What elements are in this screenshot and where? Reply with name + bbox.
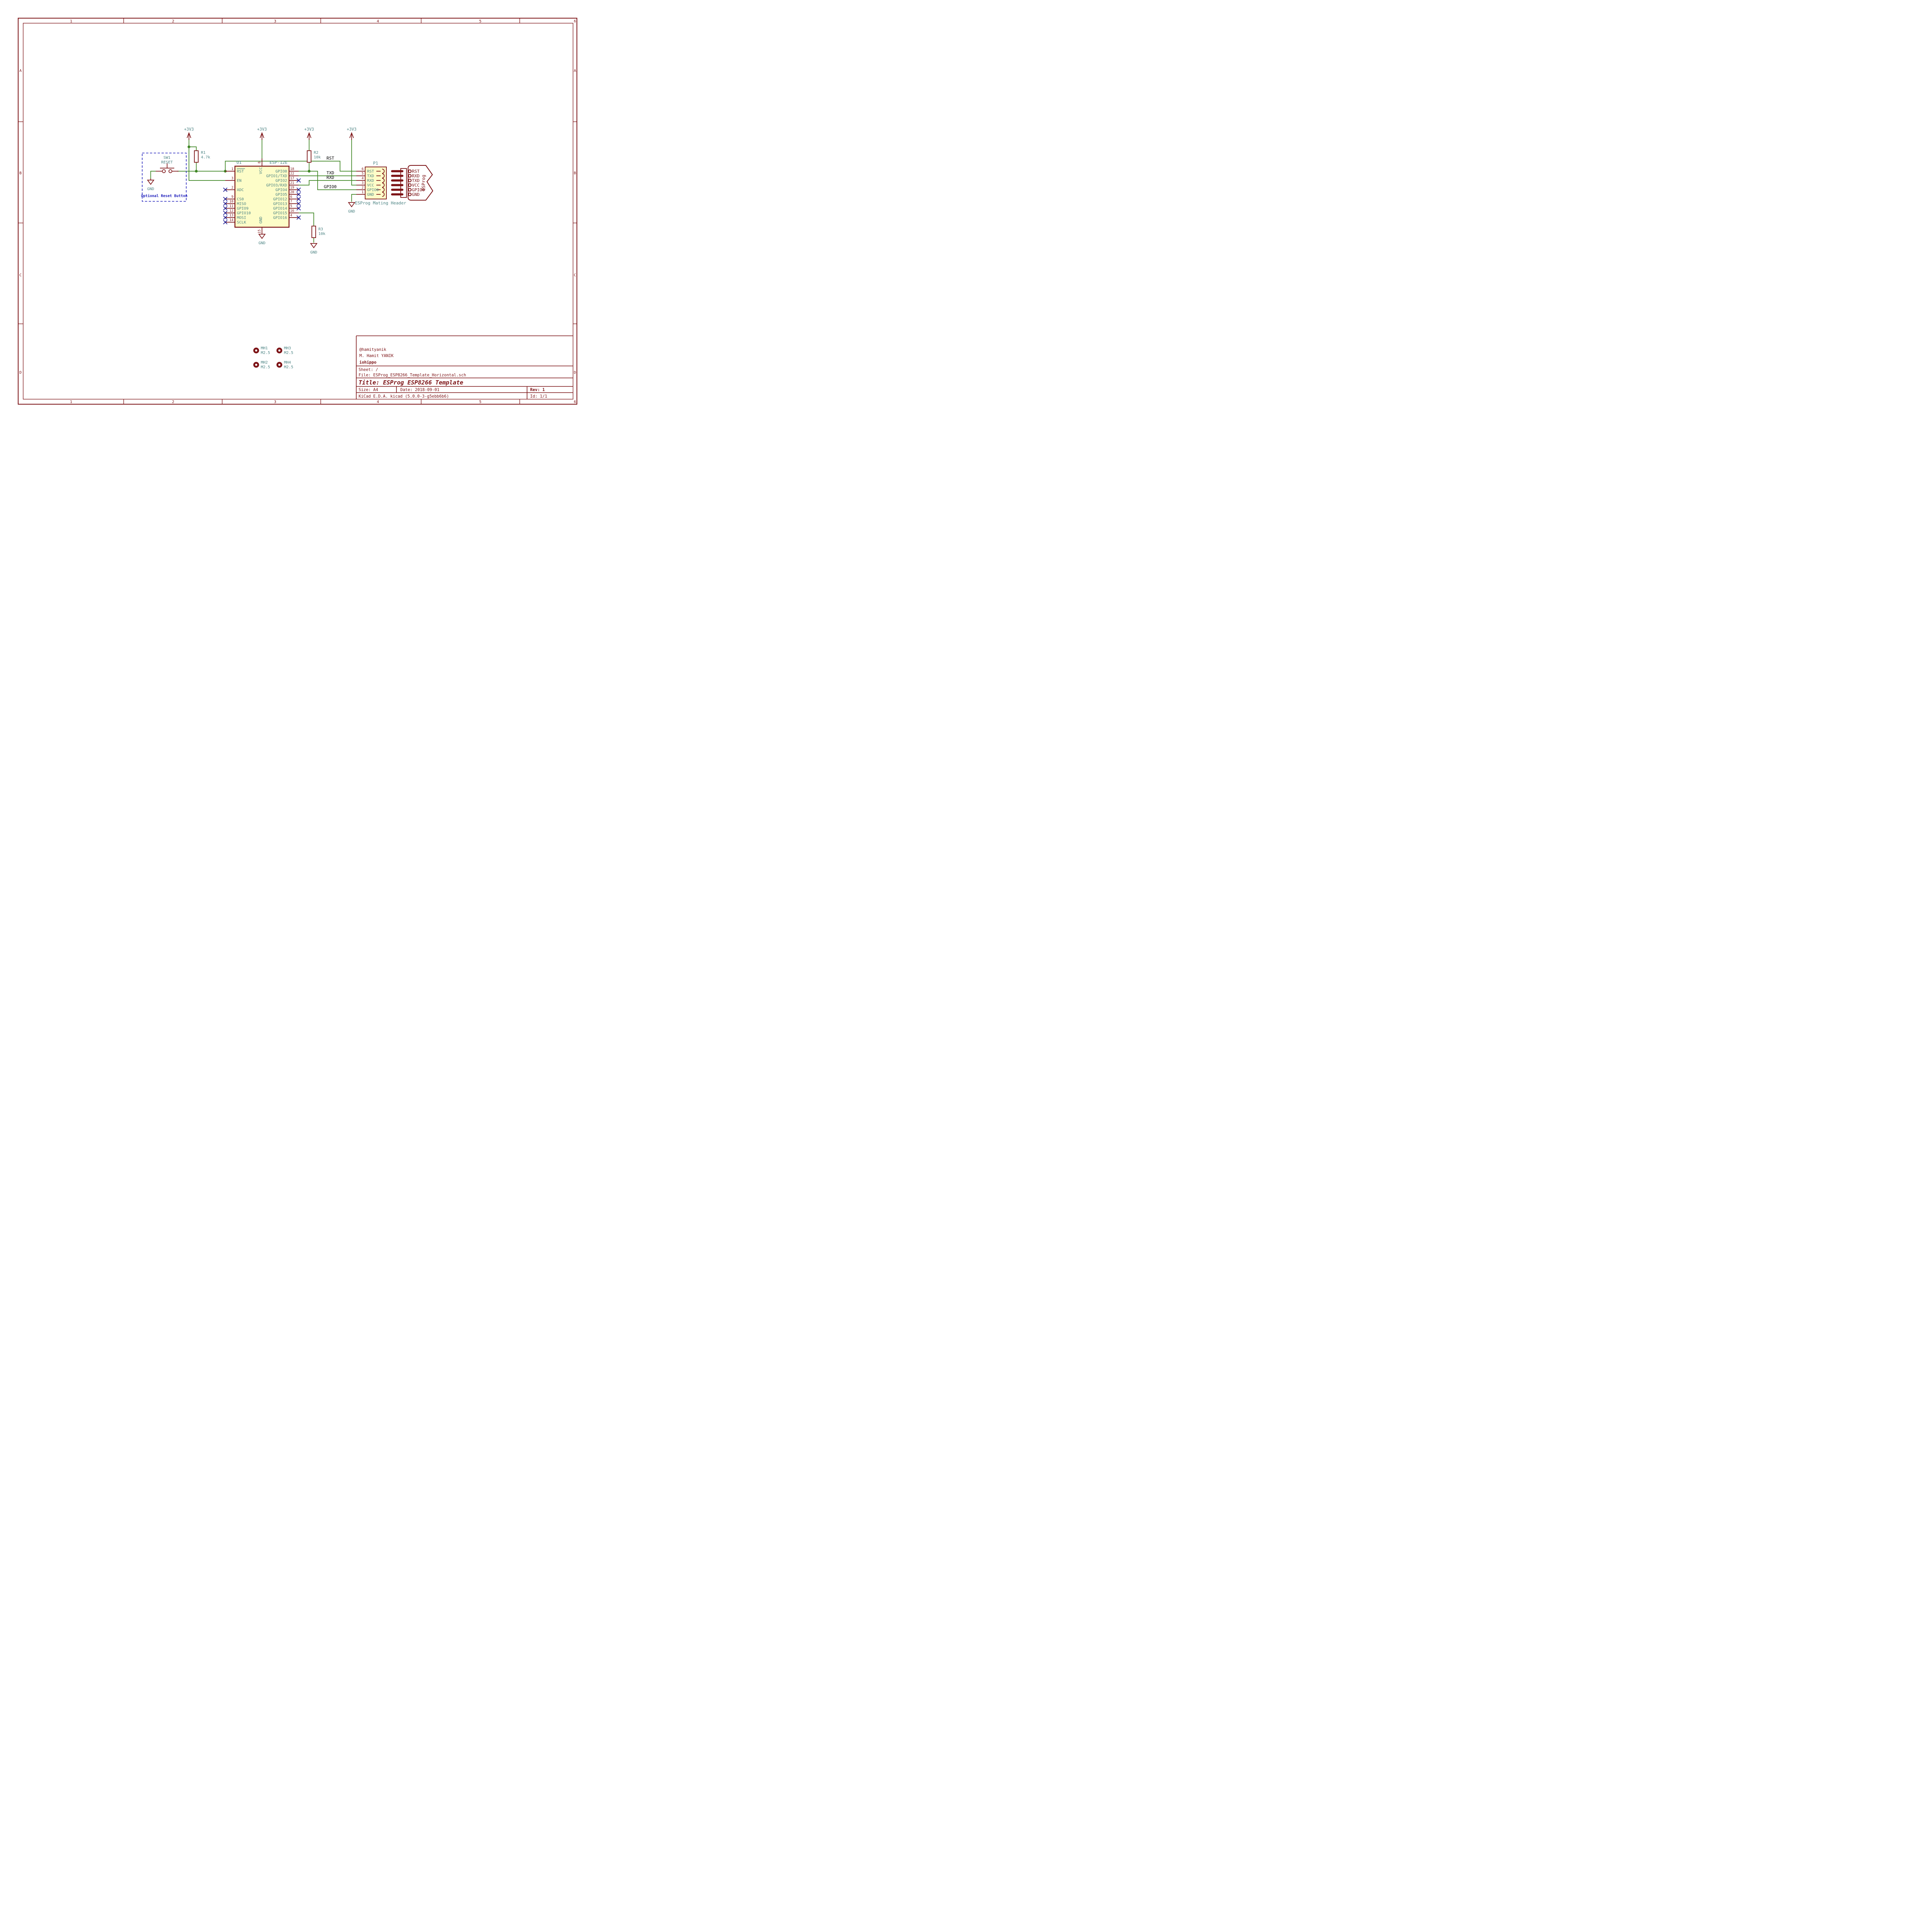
grid-row-label: A	[574, 69, 576, 73]
u1-pin-name: GPIO9	[237, 207, 248, 211]
grid-row-label: B	[574, 171, 576, 175]
junction-3v3-split	[187, 145, 190, 148]
r1-value: 4.7k	[201, 155, 210, 160]
grid-row-label: D	[19, 371, 22, 375]
u1-pin-name: ADC	[237, 188, 244, 192]
u1-pin-num: 10	[230, 200, 233, 204]
wire-gpio15-r3	[299, 213, 314, 226]
note-text: Optional Reset Button	[141, 194, 187, 198]
r3-component[interactable]: R3 10k	[312, 226, 325, 238]
tb-comment-handle: @hamityanik	[359, 347, 386, 352]
u1-pin-num: 22	[290, 172, 294, 176]
tb-date: Date: 2018-09-01	[400, 388, 439, 392]
wire-sw1-gnd	[151, 171, 156, 179]
u1-pin-name: CS0	[237, 197, 244, 202]
p1-pin-name: RXD	[367, 179, 374, 183]
esprog-pin-bar	[391, 170, 403, 172]
u1-pin-name: GPIO15	[273, 211, 287, 216]
r1-component[interactable]: R1 4.7k	[194, 151, 210, 162]
grid-col-label: 3	[274, 400, 276, 404]
grid-col-label: 5	[479, 400, 481, 404]
u1-pin-num: 6	[290, 195, 292, 199]
u1-pin-name: MISO	[237, 202, 246, 206]
junction-r1-rst	[195, 170, 197, 172]
gnd-label: GND	[147, 187, 154, 191]
u1-pin-num: 15	[258, 230, 262, 233]
esprog-connector[interactable]: RST RXD TXD VCC GPIO0 GND ESProg	[391, 165, 433, 200]
mh-ref: MH1	[261, 346, 268, 350]
tb-sheet: Sheet: /	[359, 367, 378, 372]
power-3v3-1	[187, 133, 191, 140]
mh4-component: MH4 M2.5	[277, 361, 294, 369]
u1-pin-name: GPIO1/TXD	[266, 174, 287, 179]
esprog-pin-bar	[391, 179, 403, 182]
p1-component[interactable]: P1 6 5 4 3 2 1 RST TXD RXD VCC GPIO0 GND	[355, 161, 406, 206]
esprog-pin-bar	[391, 193, 403, 196]
grid-col-label: 6	[574, 19, 576, 24]
u1-pin-num: 1	[231, 167, 233, 171]
grid-col-label: 4	[377, 19, 379, 24]
p1-pin-num: 2	[362, 186, 364, 190]
tb-size: Size: A4	[359, 388, 378, 392]
u1-pin-num: 9	[231, 195, 233, 199]
grid-row-label: D	[574, 371, 576, 375]
net-label-rst: RST	[327, 156, 334, 161]
grid-col-label: 6	[574, 400, 576, 404]
mh-value: M2.5	[284, 365, 293, 369]
power-3v3-4	[350, 133, 354, 140]
u1-pin-num: 7	[290, 200, 292, 204]
u1-pin-name: GND	[259, 216, 263, 223]
grid-row-label: A	[19, 69, 22, 73]
schematic-canvas[interactable]: 1 2 3 4 5 6 1 2 3 4 5 6 A B C D A B C D	[0, 0, 597, 422]
gnd-r3	[311, 243, 317, 248]
u1-pin-num: 5	[290, 204, 292, 208]
power-3v3-symbols[interactable]	[187, 133, 354, 140]
u1-pin-name: GPIO5	[276, 193, 287, 197]
u1-pin-name: GPIO3/RXD	[266, 184, 287, 188]
p1-pin-num: 5	[362, 172, 364, 176]
u1-pin-num: 2	[231, 186, 233, 190]
u1-pin-num: 4	[290, 214, 292, 218]
esprog-pin-bar	[391, 189, 403, 191]
power-label: +3V3	[257, 127, 267, 132]
grid-row-label: C	[19, 273, 22, 277]
mh2-component: MH2 M2.5	[253, 361, 270, 369]
tb-file: File: ESProg_ESP8266_Template_Horizontal…	[359, 373, 466, 378]
mh-ref: MH3	[284, 346, 291, 350]
u1-pin-name: EN	[237, 179, 241, 183]
esprog-housing	[401, 168, 406, 197]
esprog-pin-bar	[391, 184, 403, 186]
power-3v3-3	[307, 133, 311, 140]
p1-pin-num: 1	[362, 191, 364, 194]
esprog-pin-label: GND	[412, 192, 420, 197]
power-label: +3V3	[184, 127, 194, 132]
p1-ref: P1	[373, 161, 378, 166]
u1-pin-name: GPIO4	[276, 188, 287, 192]
power-label: +3V3	[304, 127, 314, 132]
mh-value: M2.5	[261, 365, 270, 369]
u1-pin-num: 19	[290, 186, 294, 190]
mh-value: M2.5	[261, 351, 270, 355]
u1-pin-name: GPIO10	[237, 211, 251, 216]
gnd-p1	[349, 202, 355, 207]
p1-pin-name: VCC	[367, 184, 374, 188]
esprog-label: ESProg	[421, 175, 426, 191]
tb-id: Id: 1/1	[530, 394, 547, 399]
u1-pin-num: 17	[290, 177, 294, 180]
r3-ref: R3	[318, 227, 323, 231]
p1-pin-num: 4	[362, 177, 364, 180]
sheet-border	[18, 18, 577, 404]
tb-title: Title: ESProg ESP8266 Template	[359, 379, 463, 386]
u1-pin-name: GPIO12	[273, 197, 287, 202]
net-label-rxd: RXD	[327, 175, 334, 180]
sw1-value: RESET	[161, 160, 173, 165]
u1-pin-num: 21	[290, 181, 294, 185]
mh1-component: MH1 M2.5	[253, 346, 270, 355]
grid-row-label: C	[574, 273, 576, 277]
sw1-component[interactable]: SW1 RESET	[156, 156, 179, 173]
u1-pin-name: MOSI	[237, 216, 246, 220]
power-label: +3V3	[347, 127, 356, 132]
tb-comment-name: M. Hamit YANIK	[359, 354, 394, 358]
u1-pin-name: GPIO2	[276, 179, 287, 183]
p1-pin-num: 3	[362, 181, 364, 185]
net-labels[interactable]: RST TXD RXD GPIO0	[324, 156, 337, 189]
grid-col-label: 2	[172, 400, 174, 404]
u1-ref: U1	[236, 160, 241, 165]
u1-pin-num: 12	[230, 209, 233, 213]
u1-pin-name: GPIO14	[273, 207, 287, 211]
p1-pin-name: GPIO0	[367, 188, 379, 192]
sw1-ref: SW1	[163, 156, 170, 160]
title-block: @hamityanik M. Hamit YANIK iohippo Sheet…	[356, 336, 573, 399]
u1-pin-name: VCC	[259, 167, 263, 174]
sheet-grid-labels: 1 2 3 4 5 6 1 2 3 4 5 6 A B C D A B C D	[19, 19, 576, 404]
u1-pin-num: 20	[290, 191, 294, 194]
r2-component[interactable]: R2 10k	[307, 151, 321, 162]
grid-col-label: 4	[377, 400, 379, 404]
u1-pin-num: 16	[290, 209, 294, 213]
mh-ref: MH4	[284, 361, 291, 365]
gnd-sw1	[148, 179, 154, 184]
r2-ref: R2	[314, 151, 318, 155]
gnd-label: GND	[259, 241, 265, 245]
mh-ref: MH2	[261, 361, 268, 365]
tb-tool: KiCad E.D.A. kicad (5.0.0-3-g5ebb6b6)	[359, 394, 449, 399]
junction-r2-gpio0	[308, 170, 310, 172]
net-label-gpio0: GPIO0	[324, 184, 337, 189]
u1-pin-num: 18	[290, 167, 294, 171]
u1-pin-num: 3	[231, 177, 233, 180]
grid-col-label: 3	[274, 19, 276, 24]
gnd-label: GND	[310, 250, 317, 255]
grid-col-label: 2	[172, 19, 174, 24]
grid-col-label: 5	[479, 19, 481, 24]
u1-pin-num: 13	[230, 214, 233, 218]
u1-pin-num: 14	[230, 218, 233, 222]
u1-pin-name: GPIO16	[273, 216, 287, 220]
u1-pin-name: SCLK	[237, 221, 246, 225]
grid-row-label: B	[19, 171, 22, 175]
r1-ref: R1	[201, 151, 206, 155]
u1-pin-name: RST	[237, 170, 244, 174]
power-3v3-labels: +3V3 +3V3 +3V3 +3V3	[184, 127, 356, 132]
grid-col-label: 1	[70, 400, 72, 404]
grid-col-label: 1	[70, 19, 72, 24]
tb-comment-org: iohippo	[359, 360, 376, 365]
p1-note: ESProg Mating Header	[355, 201, 406, 206]
esprog-pin-bar	[391, 175, 403, 177]
u1-pin-name: GPIO0	[276, 170, 287, 174]
p1-pin-name: RST	[367, 170, 374, 174]
mh3-component: MH3 M2.5	[277, 346, 294, 355]
p1-pin-num: 6	[362, 167, 364, 171]
u1-component[interactable]: U1 ESP-12E 8 VCC 15 GND 1 3 2 9 10 11 12…	[225, 158, 299, 233]
p1-pin-name: GND	[367, 193, 374, 197]
p1-pin-name: TXD	[367, 174, 374, 179]
mh-value: M2.5	[284, 351, 293, 355]
schematic-page: 1 2 3 4 5 6 1 2 3 4 5 6 A B C D A B C D	[0, 0, 597, 422]
wire-3v3-p1vcc	[352, 139, 356, 185]
u1-value: ESP-12E	[270, 160, 287, 165]
r3-value: 10k	[318, 232, 325, 236]
u1-pin-num: 11	[230, 204, 233, 208]
mounting-holes[interactable]: MH1 M2.5 MH2 M2.5 MH3 M2.5 MH4 M2.5	[253, 346, 294, 369]
power-3v3-2	[260, 133, 264, 140]
u1-pin-num: 8	[258, 162, 262, 163]
r2-value: 10k	[314, 155, 321, 160]
gnd-label: GND	[348, 209, 355, 214]
tb-rev: Rev: 1	[530, 388, 545, 392]
u1-pin-name: GPIO13	[273, 202, 287, 206]
